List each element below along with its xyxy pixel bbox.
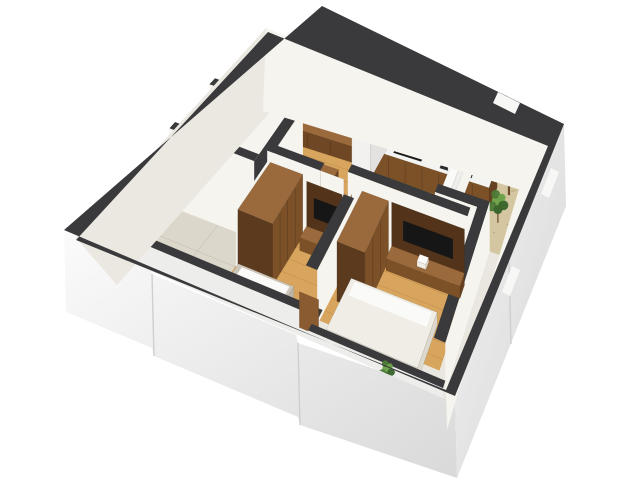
balcony-floor-speckle-dot [507,224,509,226]
plant-balcony-small-foliage [493,205,502,214]
floorplan-render-page: 3D isometric cutaway render of an apartm… [0,0,640,480]
floorplan-3d-render [0,0,640,480]
balcony-floor-speckle-dot [511,190,513,192]
balcony-floor-speckle-dot [493,232,495,234]
plant-balcony-small-foliage [498,194,506,202]
balcony-floor-speckle-dot [514,190,516,192]
